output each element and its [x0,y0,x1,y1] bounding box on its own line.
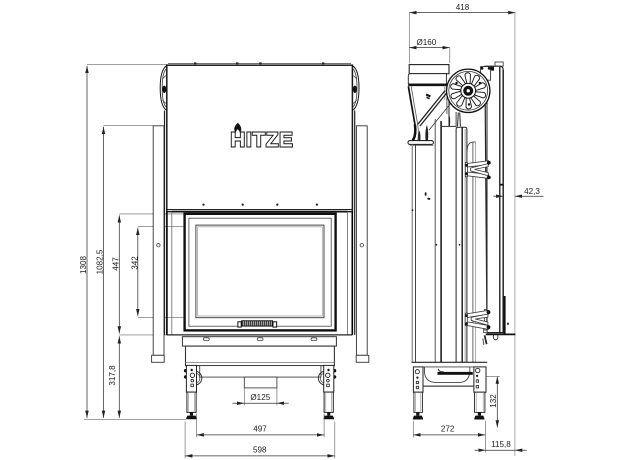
svg-text:317,8: 317,8 [108,365,117,386]
svg-text:Ø125: Ø125 [250,393,270,402]
svg-text:272: 272 [441,425,455,434]
svg-text:42,3: 42,3 [524,187,540,196]
svg-text:115,8: 115,8 [491,440,511,449]
svg-text:Ø160: Ø160 [416,38,436,47]
svg-text:342: 342 [130,256,139,270]
svg-text:598: 598 [253,446,267,455]
svg-text:418: 418 [456,3,470,12]
svg-text:497: 497 [253,425,267,434]
svg-text:132: 132 [489,394,498,408]
svg-text:1082,5: 1082,5 [96,249,105,274]
svg-text:447: 447 [111,257,120,271]
svg-text:1308: 1308 [79,256,88,275]
